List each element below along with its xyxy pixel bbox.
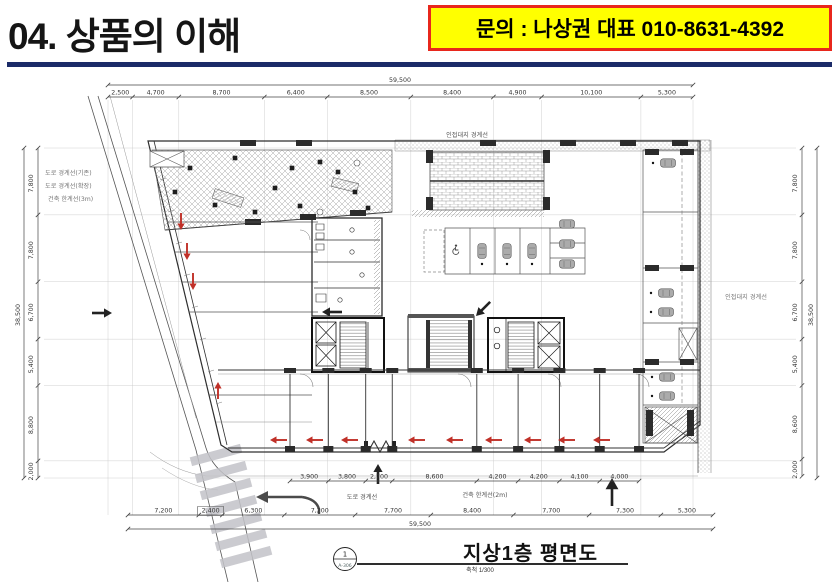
dim-label: 8,600 — [792, 415, 799, 433]
floor-plan-drawing: 2,5004,7008,7006,4008,5008,4004,90010,10… — [0, 0, 840, 582]
shopfront-column — [387, 446, 397, 452]
dim-label: 4,000 — [610, 474, 628, 481]
label-adjacent-right: 인접대지 경계선 — [725, 293, 767, 301]
plan-labels: 도로 경계선(기존) 도로 경계선(확장) 건축 한계선(3m) 인접대지 경계… — [45, 131, 767, 501]
car-icon — [661, 159, 676, 167]
dim-label: 4,100 — [571, 474, 589, 481]
sheet-number: 1 — [343, 551, 347, 559]
entry-arrow-right — [606, 478, 619, 506]
dim-label: 4,900 — [508, 90, 526, 97]
dim-label: 2,700 — [370, 474, 388, 481]
contact-banner-text: 문의 : 나상권 대표 010-8631-4392 — [476, 13, 784, 43]
plaza-column — [233, 156, 238, 161]
title-underline-rule — [7, 62, 832, 67]
parking-dot — [506, 263, 508, 265]
caption-block: 1 A-306 지상1층 평면도 축척 1/300 — [334, 542, 629, 574]
edge-column — [240, 140, 256, 146]
structure-column — [284, 368, 296, 373]
label-road-bottom: 도로 경계선 — [347, 493, 378, 501]
shopfront-column — [285, 446, 295, 452]
dim-label: 8,800 — [28, 416, 35, 434]
red-flow-arrows — [177, 213, 610, 444]
red-arrow-left — [446, 436, 463, 443]
red-arrow-left — [270, 436, 287, 443]
dim-label: 5,400 — [28, 355, 35, 373]
dim-label: 8,600 — [426, 474, 444, 481]
parking-dot — [650, 292, 652, 294]
dim-label: 2,500 — [111, 90, 129, 97]
shop-partitions — [284, 368, 645, 452]
dim-label: 4,700 — [147, 90, 165, 97]
parking-dot — [531, 263, 533, 265]
dim-label: 59,500 — [389, 77, 411, 84]
dim-label: 7,800 — [792, 241, 799, 259]
boundary-hatch-top — [395, 140, 710, 151]
elevator-x — [538, 346, 560, 368]
crosswalk-stripes — [190, 444, 273, 568]
structure-column — [594, 368, 606, 373]
shopfront-column — [595, 446, 605, 452]
dim-label: 2,000 — [792, 461, 799, 479]
escalator-steps — [430, 320, 468, 368]
edge-column — [620, 140, 636, 146]
page-title: 04. 상품의 이해 — [8, 6, 240, 60]
stair-flight — [508, 322, 534, 368]
car-icon — [528, 244, 536, 259]
plaza-column — [273, 186, 278, 191]
red-arrow-left — [593, 436, 610, 443]
car-icon — [560, 220, 575, 228]
structure-column — [553, 368, 565, 373]
plaza-column — [290, 166, 295, 171]
parking-dot — [650, 311, 652, 313]
sheet-ref: A-306 — [338, 563, 352, 569]
entry-arrow-left-side — [92, 308, 112, 317]
red-arrow-left — [558, 436, 575, 443]
elevator-x — [316, 322, 336, 343]
dim-label: 8,700 — [213, 90, 231, 97]
building-limit-line — [110, 96, 196, 418]
dim-label: 10,100 — [580, 90, 602, 97]
dim-label: 4,200 — [488, 474, 506, 481]
stall-columns — [645, 149, 694, 365]
core-left — [312, 318, 384, 372]
plaza-column — [298, 204, 303, 209]
plan-title: 지상1층 평면도 — [463, 542, 598, 565]
car-icon — [503, 244, 511, 259]
parking-dot — [481, 263, 483, 265]
shopfront-column — [554, 446, 564, 452]
shopfront-column — [361, 446, 371, 452]
structure-column — [360, 368, 372, 373]
shopfront-column — [472, 446, 482, 452]
dim-label: 7,200 — [311, 508, 329, 515]
dim-label: 38,500 — [808, 304, 815, 326]
door-swing-arcs — [300, 374, 649, 387]
plaza-circle-2 — [354, 160, 360, 166]
label-building-limit-3m: 건축 한계선(3m) — [48, 195, 93, 203]
dim-label: 7,800 — [28, 241, 35, 259]
structure-column — [471, 368, 483, 373]
parking-dot — [652, 162, 654, 164]
structure-column — [633, 368, 645, 373]
structure-column — [386, 368, 398, 373]
left-rooms — [167, 218, 318, 422]
car-icon — [560, 240, 575, 248]
dim-label: 8,400 — [463, 508, 481, 515]
dim-label: 3,900 — [300, 474, 318, 481]
label-road-extended: 도로 경계선(확장) — [45, 182, 92, 190]
dim-label: 6,700 — [28, 303, 35, 321]
contact-banner: 문의 : 나상권 대표 010-8631-4392 — [428, 5, 832, 51]
label-road-existing: 도로 경계선(기존) — [45, 169, 92, 177]
plaza-column — [353, 190, 358, 195]
parking-dot — [651, 376, 653, 378]
red-arrow-left — [524, 436, 541, 443]
elevator-x — [538, 322, 560, 344]
dim-label: 2,000 — [28, 462, 35, 480]
parking-ramp — [412, 150, 550, 217]
shopfront-column — [634, 446, 644, 452]
plaza-circle-1 — [317, 209, 323, 215]
dim-label: 3,800 — [338, 474, 356, 481]
car-icon — [478, 244, 486, 259]
label-building-limit-2m: 건축 한계선(2m) — [462, 491, 507, 499]
shopfront-column — [323, 446, 333, 452]
red-arrow-left — [408, 436, 425, 443]
car-icon — [560, 260, 575, 268]
ramp-hatch-band — [412, 210, 544, 217]
red-arrow-left — [306, 436, 323, 443]
dim-label: 7,800 — [28, 174, 35, 192]
dim-label: 6,300 — [244, 508, 262, 515]
plaza-column — [253, 210, 258, 215]
elevator-x — [316, 345, 336, 366]
dim-label: 59,500 — [409, 521, 431, 528]
dim-label: 4,200 — [530, 474, 548, 481]
core-right — [488, 318, 564, 372]
plaza-column — [173, 190, 178, 195]
red-arrow-left — [341, 436, 358, 443]
dim-label: 7,700 — [542, 508, 560, 515]
structure-column — [512, 368, 524, 373]
plaza-column — [366, 206, 371, 211]
dim-label: 2,400 — [202, 508, 220, 515]
label-adjacent-top: 인접대지 경계선 — [446, 131, 488, 139]
dim-label: 7,800 — [792, 174, 799, 192]
dim-label: 7,700 — [384, 508, 402, 515]
dim-label: 7,200 — [154, 508, 172, 515]
dim-label: 6,700 — [792, 303, 799, 321]
flow-arrow-diagonal — [473, 299, 494, 320]
escalator-core — [408, 314, 474, 372]
wheelchair-icon — [453, 244, 459, 254]
plaza-column — [188, 166, 193, 171]
red-arrow-down — [183, 243, 190, 260]
plaza-column — [336, 170, 341, 175]
car-icon — [659, 289, 674, 297]
shopfront-column — [513, 446, 523, 452]
edge-column — [672, 140, 688, 146]
dim-label: 5,300 — [658, 90, 676, 97]
dim-label: 8,500 — [360, 90, 378, 97]
plan-scale: 축척 1/300 — [466, 566, 494, 574]
stair-flight — [340, 322, 366, 368]
edge-column — [296, 140, 312, 146]
edge-column — [480, 140, 496, 146]
parking-dot — [651, 395, 653, 397]
road-turn-arrow-head — [256, 491, 268, 503]
dim-label: 6,400 — [287, 90, 305, 97]
dim-label: 8,400 — [443, 90, 461, 97]
structure-column — [322, 368, 334, 373]
plaza-column — [213, 203, 218, 208]
plaza-column — [318, 160, 323, 165]
dim-label: 38,500 — [15, 304, 22, 326]
car-icon — [659, 308, 674, 316]
toilet-core — [312, 218, 382, 316]
flow-arrow-left — [322, 307, 342, 316]
car-icon — [660, 392, 675, 400]
dim-label: 5,300 — [678, 508, 696, 515]
dim-label: 7,300 — [616, 508, 634, 515]
dim-label: 5,400 — [792, 355, 799, 373]
edge-column — [560, 140, 576, 146]
